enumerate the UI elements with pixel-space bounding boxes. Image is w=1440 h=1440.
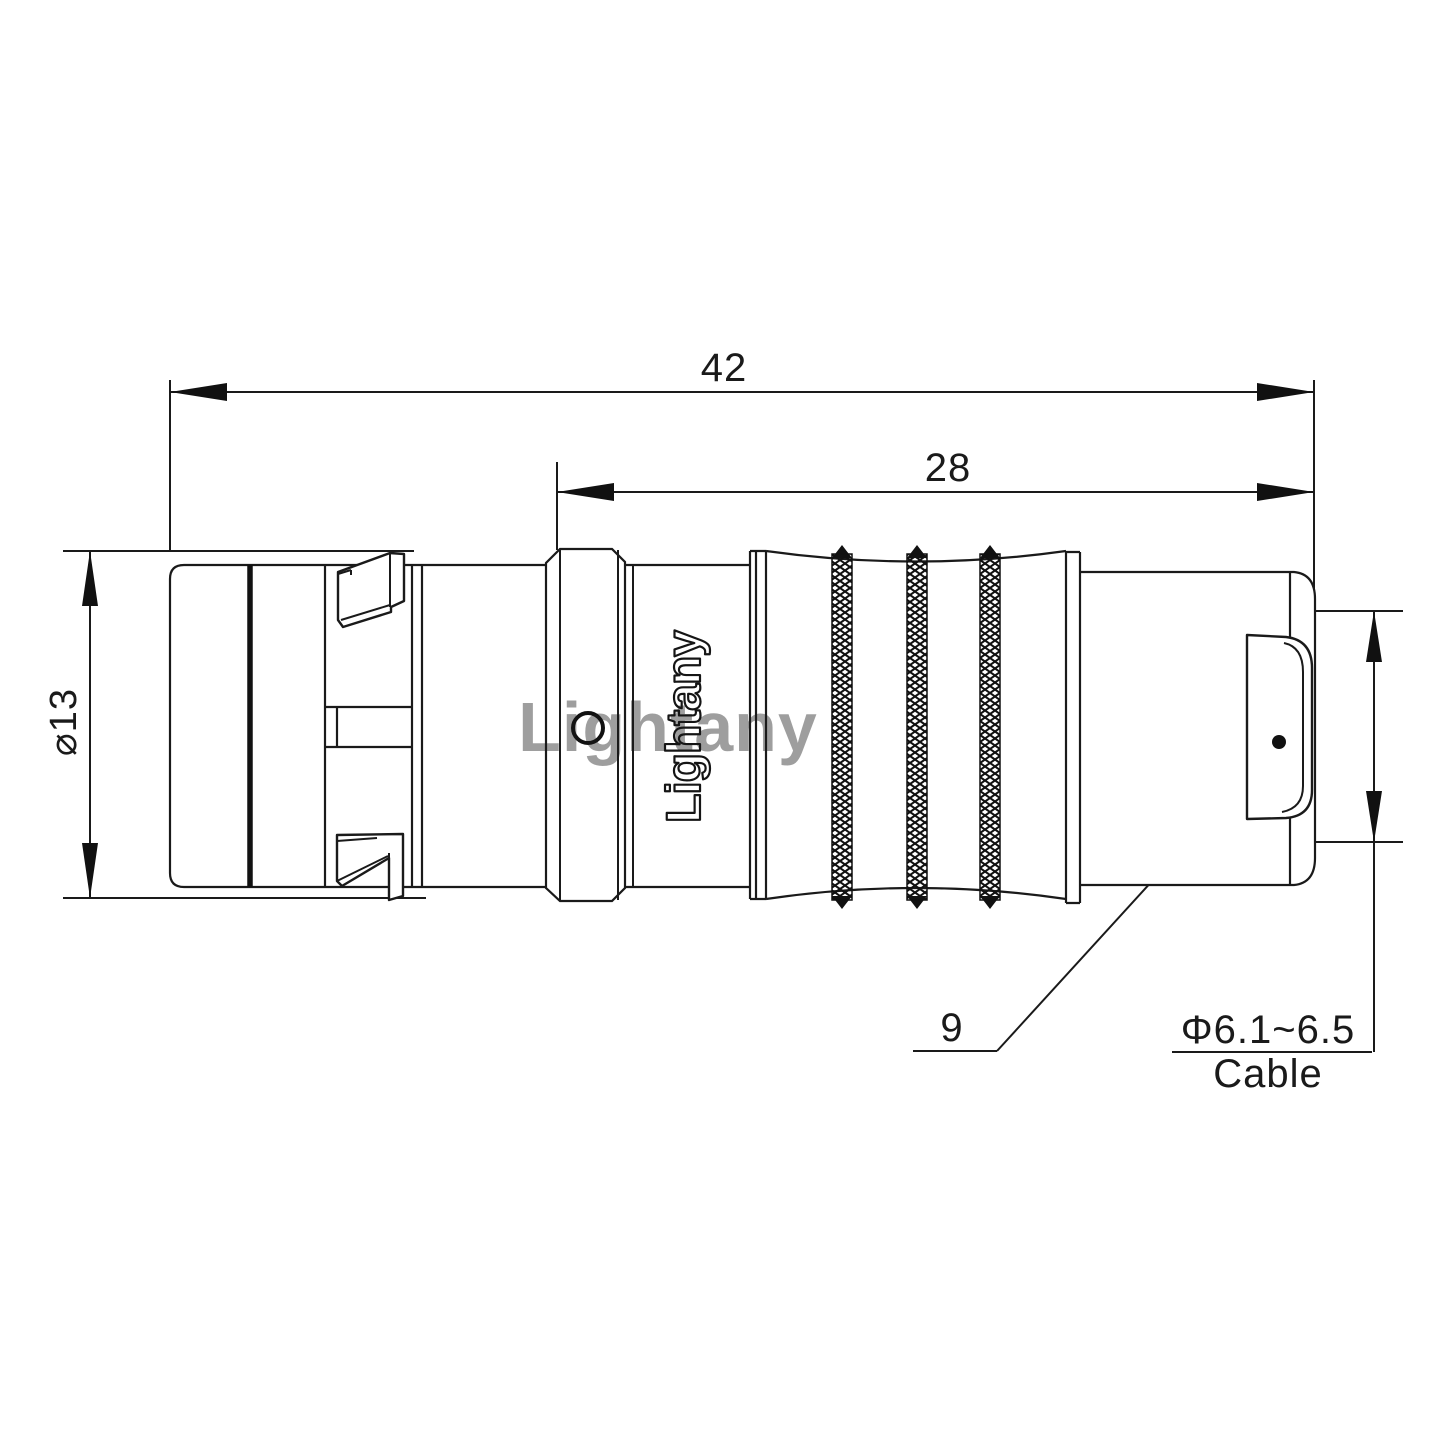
cable-word-label: Cable <box>1213 1052 1323 1096</box>
lower-latch <box>337 834 403 900</box>
cable-bushing <box>1247 635 1312 819</box>
cable-diameter-label: Φ6.1~6.5 <box>1181 1008 1355 1052</box>
bushing-callout-dot <box>1272 735 1286 749</box>
dim-label-diameter-13: ⌀13 <box>43 688 85 756</box>
knurl-band-2 <box>907 545 927 909</box>
knurl-band-1 <box>832 545 852 909</box>
watermark-text: Lightany <box>518 688 818 766</box>
dimension-rear-length-28: 28 <box>557 446 1314 550</box>
connector-drawing-canvas: 42 28 ⌀13 Φ6.1~6.5 Cable 9 <box>0 0 1440 1440</box>
knurl-band-3 <box>980 545 1000 909</box>
dim-label-28: 28 <box>925 446 972 490</box>
dim-label-42: 42 <box>701 346 748 390</box>
dimension-overall-length-42: 42 <box>170 346 1314 592</box>
technical-drawing-page: 42 28 ⌀13 Φ6.1~6.5 Cable 9 <box>0 0 1440 1440</box>
bushing-number-label: 9 <box>940 1006 963 1050</box>
